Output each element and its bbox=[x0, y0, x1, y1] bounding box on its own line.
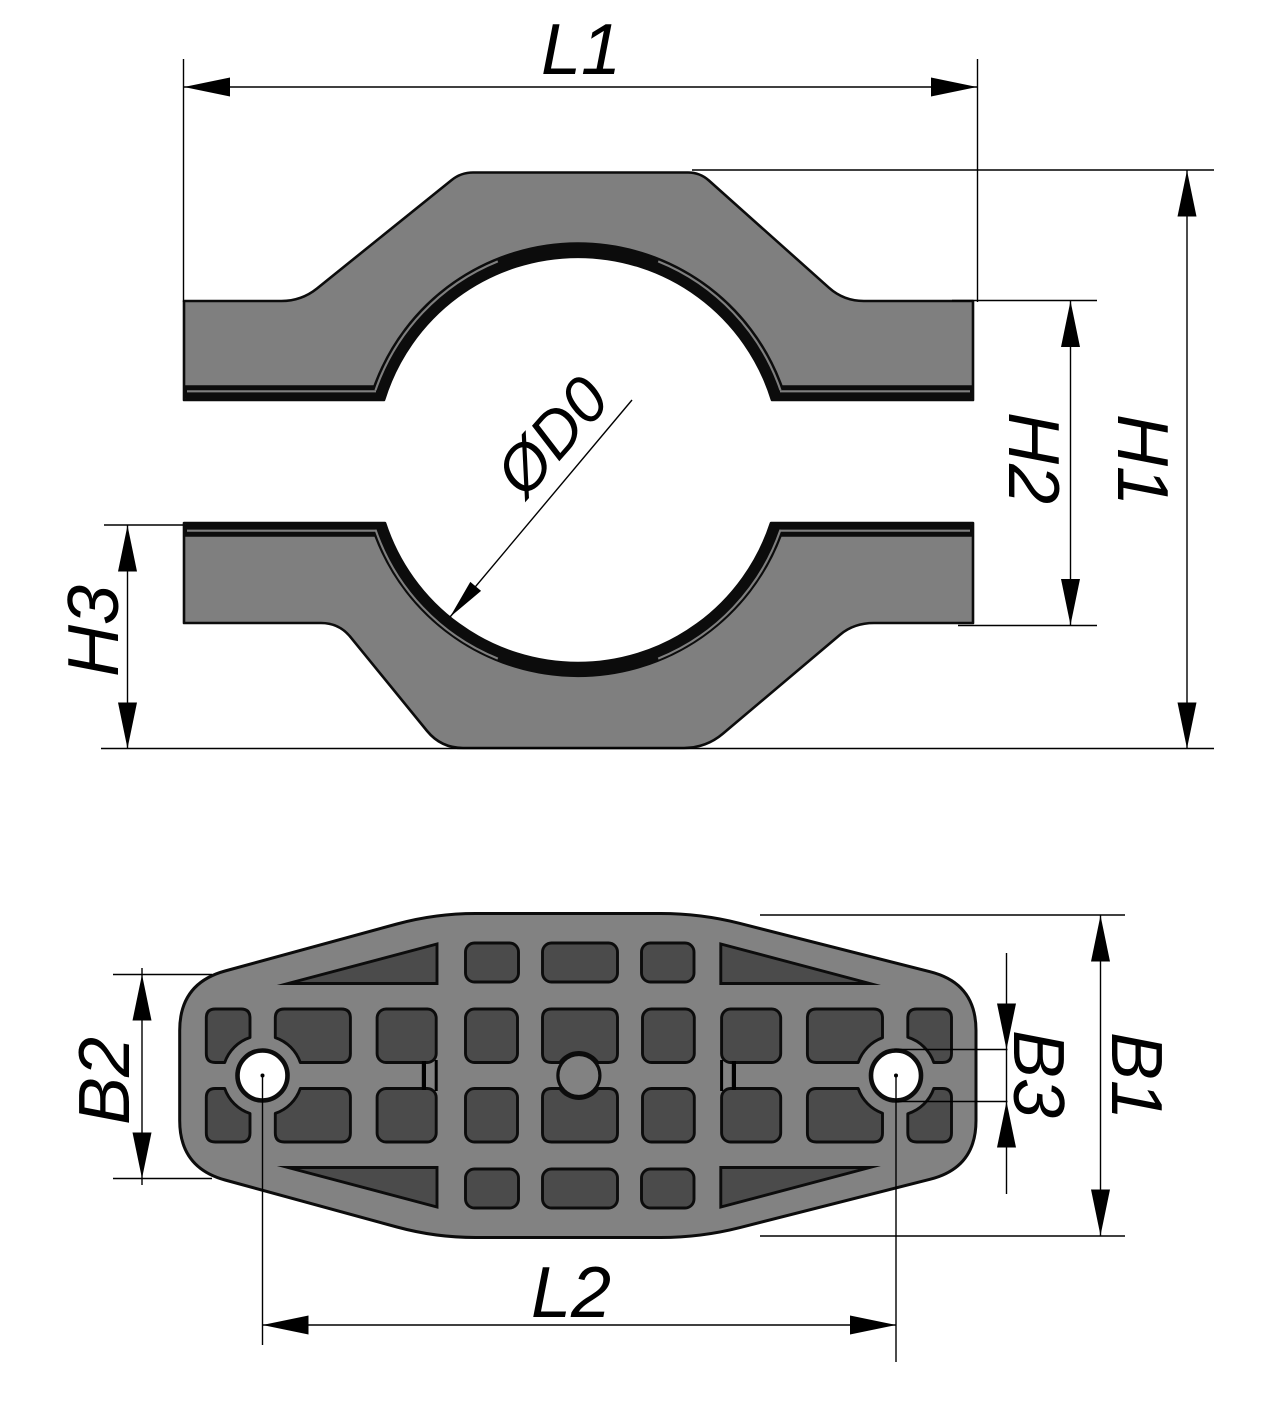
svg-text:H2: H2 bbox=[993, 412, 1073, 504]
svg-text:H1: H1 bbox=[1102, 414, 1182, 506]
svg-text:H3: H3 bbox=[54, 585, 134, 677]
svg-text:B2: B2 bbox=[65, 1037, 145, 1125]
svg-text:B1: B1 bbox=[1096, 1032, 1176, 1120]
svg-text:L2: L2 bbox=[531, 1253, 611, 1333]
svg-text:L1: L1 bbox=[541, 10, 621, 90]
svg-text:B3: B3 bbox=[998, 1030, 1078, 1118]
